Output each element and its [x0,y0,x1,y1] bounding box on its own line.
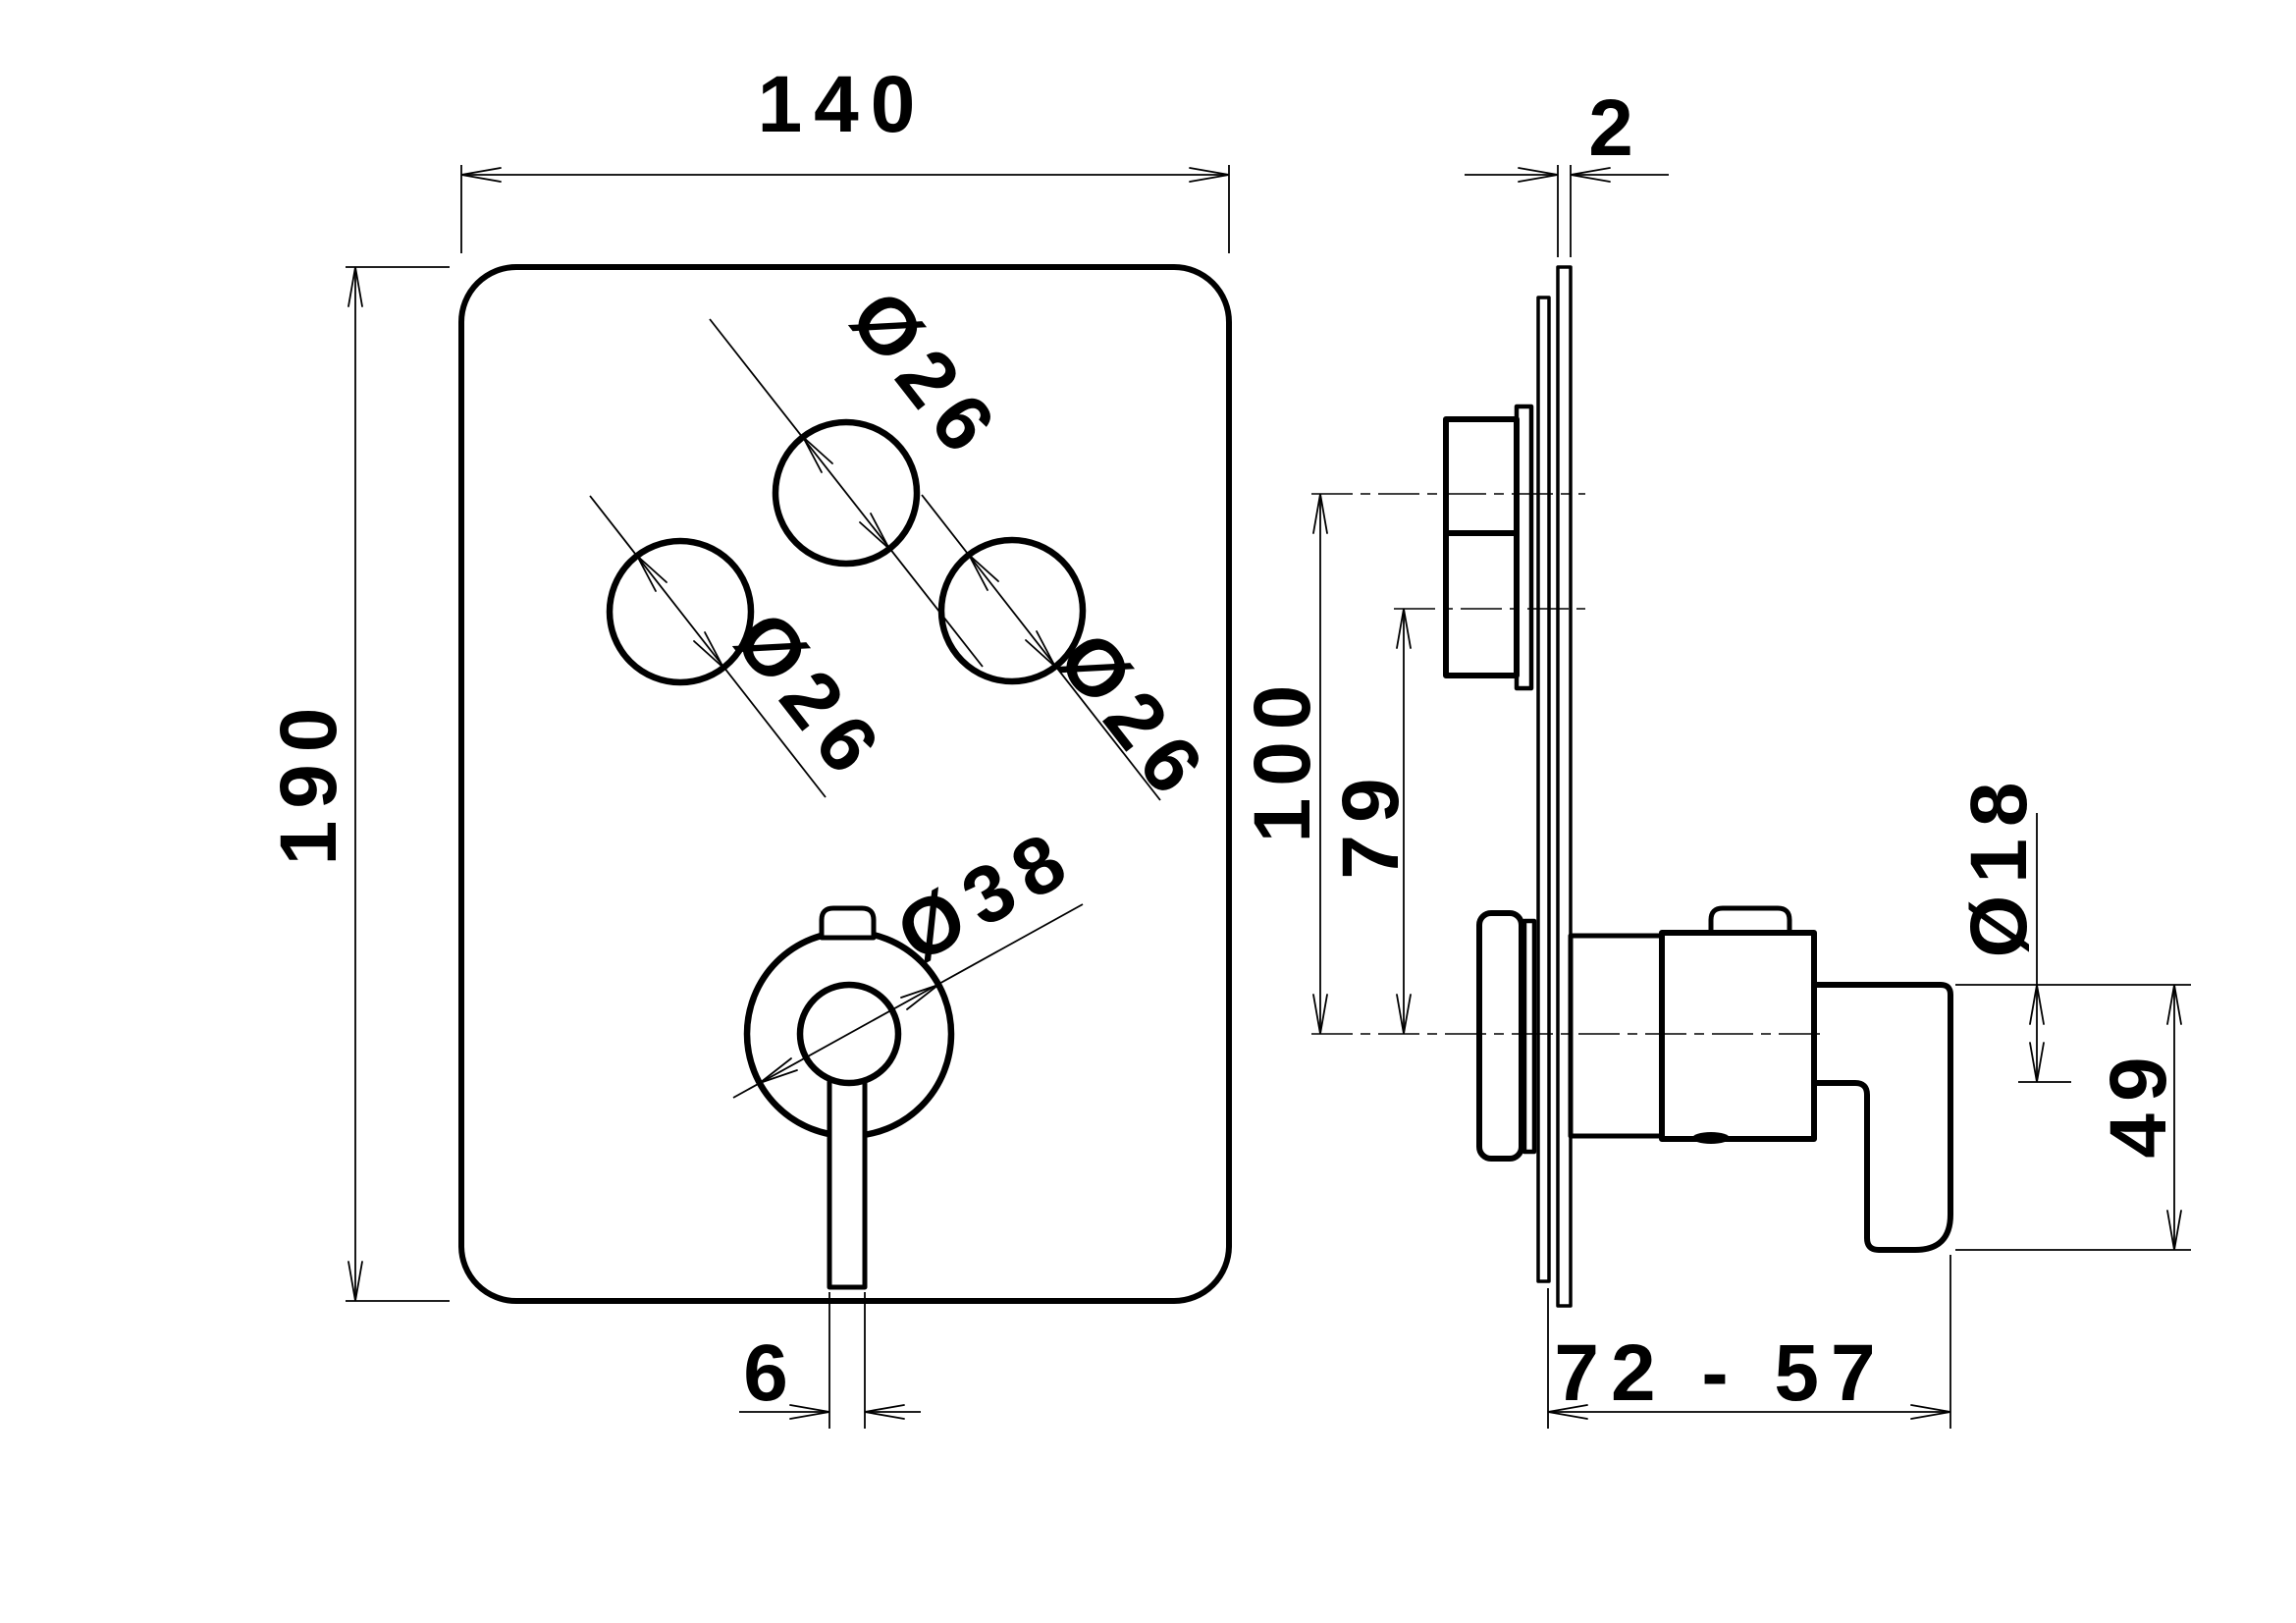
handle-top-button [822,908,874,938]
dim-stem-width: 6 [739,1292,921,1429]
lower-flange-cap [1524,921,1534,1152]
dim-label-lever-diameter: Ø18 [1954,771,2044,958]
dim-label-plate-thickness: 2 [1588,83,1645,173]
lower-flange-block [1479,913,1522,1159]
dim-label-top-knob-offset: 100 [1238,674,1327,843]
dim-projection-depth: 72 - 57 [1548,1255,1950,1429]
dim-label-plate-height: 190 [264,696,353,866]
technical-drawing: 140 190 6 Ø26 Ø26 Ø26 Ø38 [0,0,2296,1623]
dim-plate-height: 190 [264,267,450,1301]
drawing-sheet: 140 190 6 Ø26 Ø26 Ø26 Ø38 [0,0,2296,1623]
dim-top-knob-offset: 100 [1238,494,1327,1034]
handle-body-side [1662,933,1814,1139]
dim-label-projection-depth: 72 - 57 [1554,1328,1887,1418]
dim-label-lever-drop: 49 [2094,1045,2183,1158]
dim-lever-diameter: Ø18 [1954,771,2191,1083]
dim-lever-drop: 49 [1955,985,2191,1250]
handle-sleeve [1571,936,1662,1136]
wall-flange-strip [1538,298,1549,1281]
upper-cartridge-body [1446,419,1517,676]
lever-stem [829,1080,865,1287]
lever-arm-side [1814,985,1950,1250]
dim-label-stem-width: 6 [743,1328,800,1418]
plate-edge-strip [1558,267,1571,1306]
dim-plate-thickness: 2 [1465,83,1669,257]
dim-label-side-knob-offset: 79 [1326,766,1415,879]
dim-label-plate-width: 140 [758,60,928,149]
dim-side-knob-offset: 79 [1326,609,1415,1034]
dim-plate-width: 140 [461,60,1229,253]
set-screw-mark [1692,1132,1730,1144]
